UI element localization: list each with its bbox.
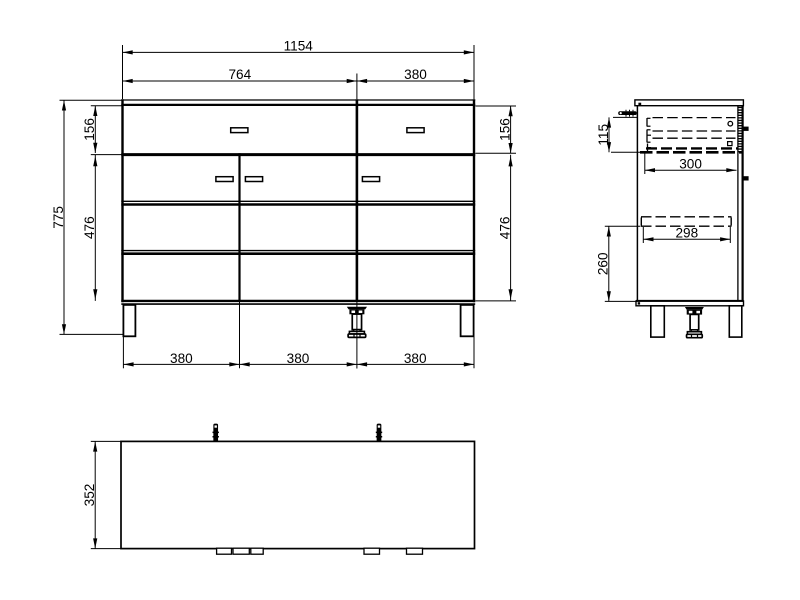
svg-text:115: 115 <box>596 124 611 146</box>
svg-text:476: 476 <box>82 216 97 239</box>
svg-text:764: 764 <box>228 67 251 82</box>
svg-text:352: 352 <box>82 484 97 507</box>
svg-text:380: 380 <box>404 351 427 366</box>
svg-text:156: 156 <box>498 118 513 141</box>
svg-text:156: 156 <box>82 118 97 141</box>
svg-text:380: 380 <box>170 351 193 366</box>
svg-text:380: 380 <box>404 67 427 82</box>
svg-text:1154: 1154 <box>284 39 314 54</box>
svg-text:476: 476 <box>498 217 513 240</box>
svg-text:775: 775 <box>51 206 66 229</box>
svg-text:300: 300 <box>679 156 702 171</box>
svg-text:260: 260 <box>596 252 611 275</box>
svg-text:298: 298 <box>675 226 698 241</box>
svg-text:380: 380 <box>287 351 310 366</box>
